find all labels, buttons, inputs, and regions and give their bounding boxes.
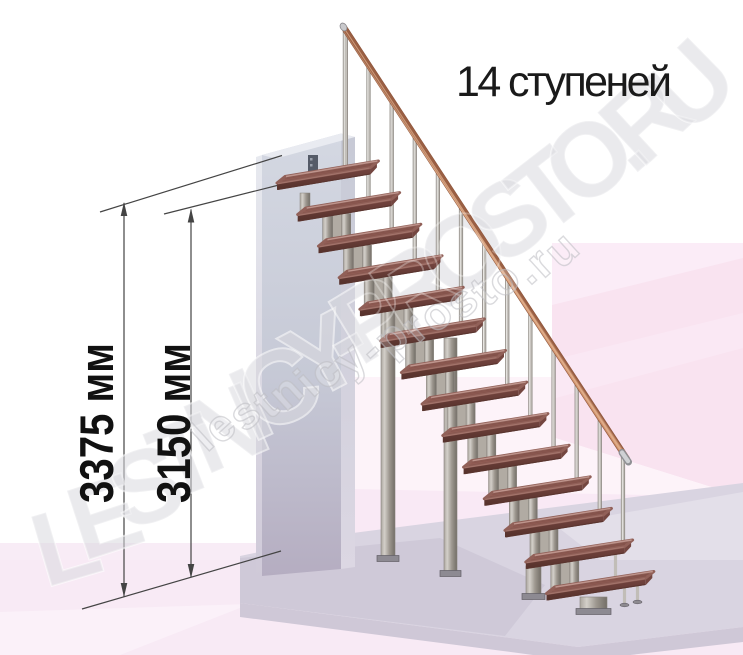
svg-text:14 ступеней: 14 ступеней xyxy=(456,58,672,106)
svg-text:3150 мм: 3150 мм xyxy=(147,343,200,503)
svg-text:3375 мм: 3375 мм xyxy=(70,343,123,503)
